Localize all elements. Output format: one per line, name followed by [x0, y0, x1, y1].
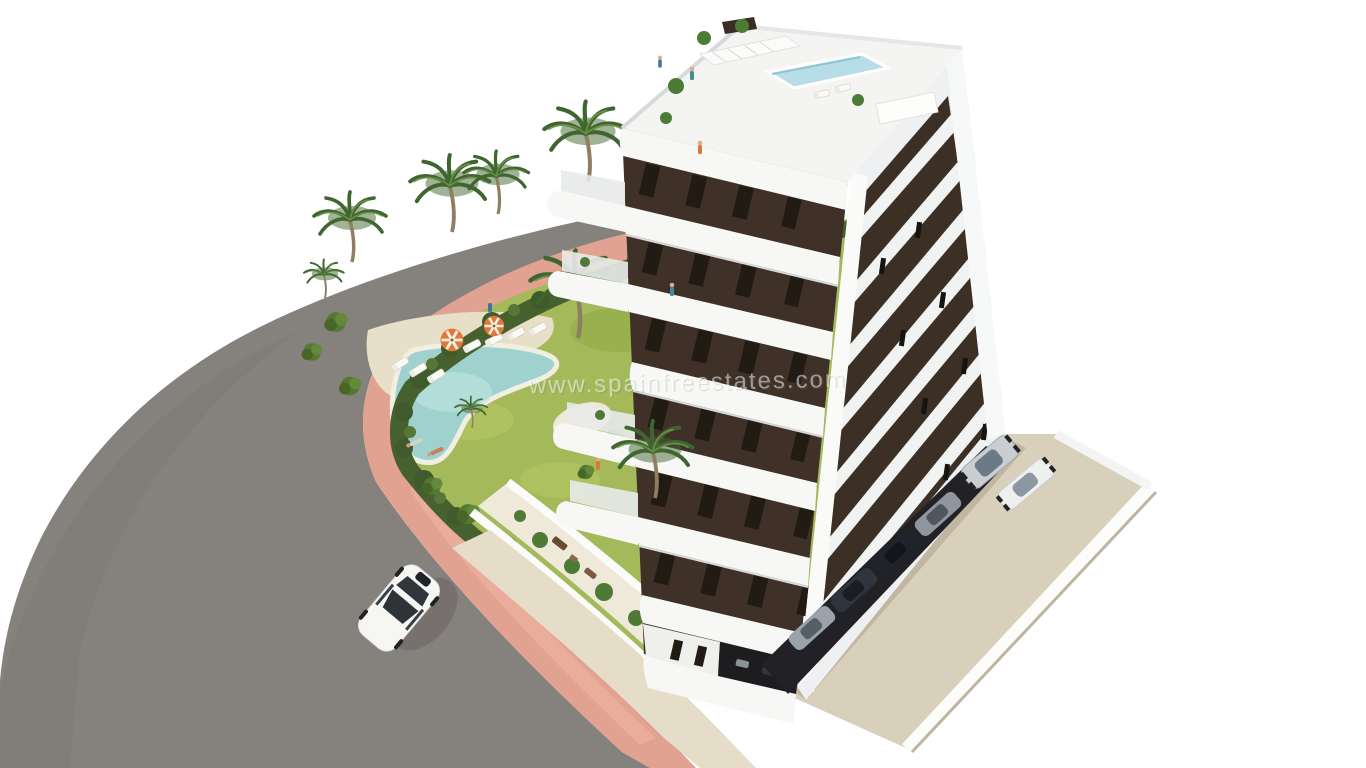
render-canvas: www.spainfreestates.com www.spainfreesta… [0, 0, 1366, 768]
architectural-render: www.spainfreestates.com www.spainfreesta… [0, 0, 1366, 768]
